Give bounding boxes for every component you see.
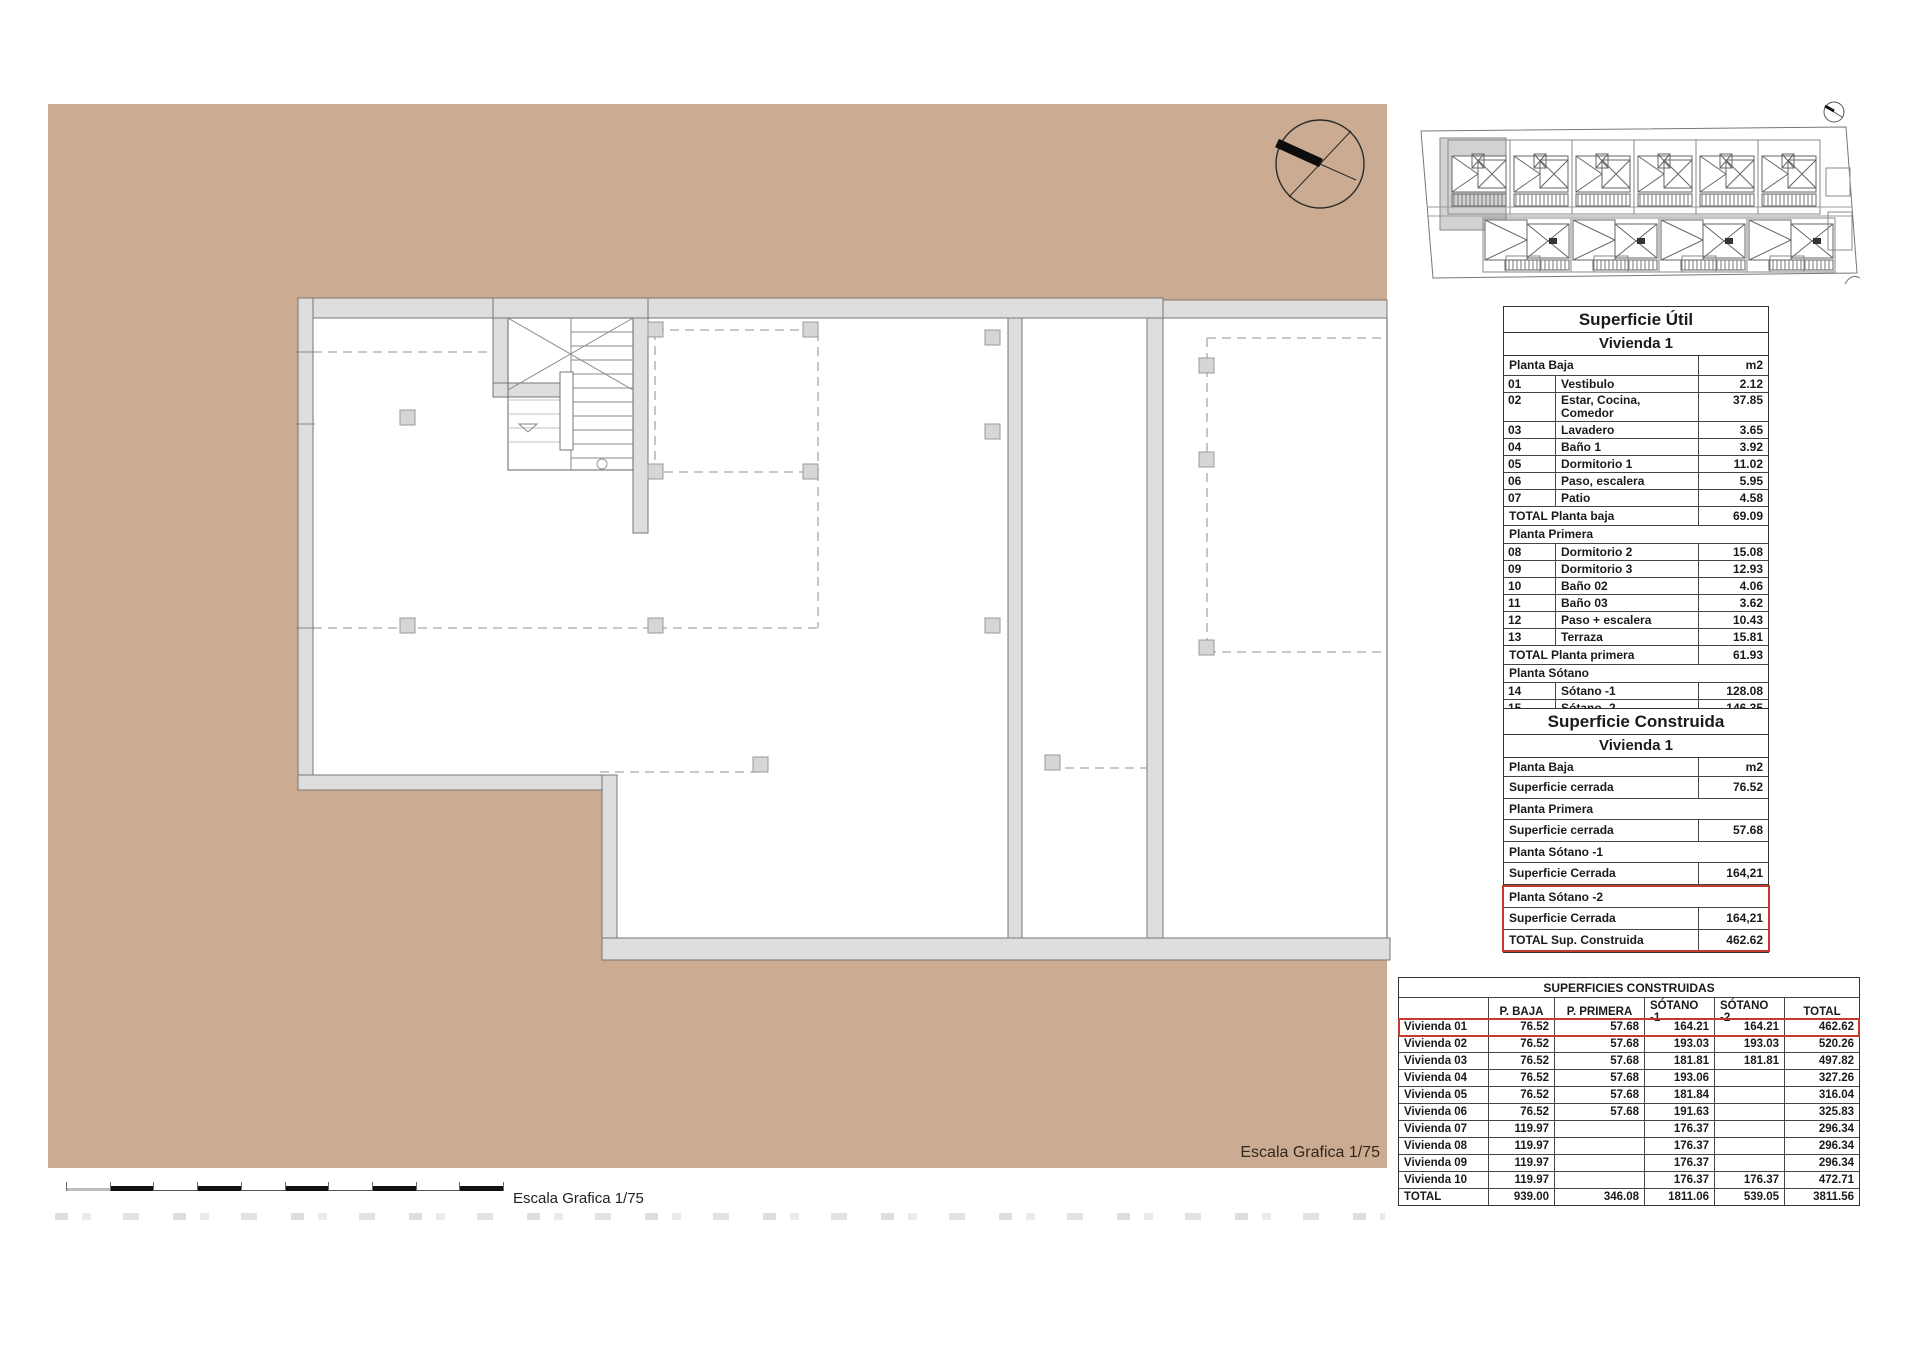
- row-value: 57.68: [1555, 1019, 1645, 1035]
- table-row: Superficie cerrada57.68: [1504, 820, 1768, 842]
- row-value: 193.06: [1645, 1070, 1715, 1086]
- row-value: [1555, 1172, 1645, 1188]
- row-number: 12: [1504, 612, 1556, 628]
- row-label: Vivienda 08: [1399, 1138, 1489, 1154]
- superficie-construida-table: Superficie Construida Vivienda 1 Planta …: [1503, 708, 1769, 953]
- scale-bar-segment: [110, 1186, 154, 1191]
- row-value: 176.37: [1645, 1121, 1715, 1137]
- row-label: Vestibulo: [1556, 377, 1698, 392]
- table-row: 04Baño 13.92: [1504, 439, 1768, 456]
- row-value: 327.26: [1785, 1070, 1859, 1086]
- table-title: Superficie Construida: [1504, 709, 1768, 735]
- table-row: 14Sótano -1128.08: [1504, 683, 1768, 700]
- row-value: 164.21: [1645, 1019, 1715, 1035]
- table-row: 12Paso + escalera10.43: [1504, 612, 1768, 629]
- row-value: 76.52: [1489, 1070, 1555, 1086]
- summary-row: Vivienda 0476.5257.68193.06327.26: [1399, 1070, 1859, 1087]
- row-label: Baño 02: [1556, 579, 1698, 594]
- row-value: 325.83: [1785, 1104, 1859, 1120]
- row-label: Superficie cerrada: [1504, 823, 1698, 838]
- row-label: Vivienda 04: [1399, 1070, 1489, 1086]
- row-value: 181.81: [1645, 1053, 1715, 1069]
- table-subtitle: Vivienda 1: [1504, 333, 1768, 356]
- row-label: Planta Sótano -2: [1504, 890, 1768, 905]
- row-label: Paso, escalera: [1556, 474, 1698, 489]
- table-row: Planta Sótano: [1504, 665, 1768, 683]
- row-value: 176.37: [1645, 1172, 1715, 1188]
- summary-row: Vivienda 10119.97176.37176.37472.71: [1399, 1172, 1859, 1189]
- row-value: 119.97: [1489, 1155, 1555, 1171]
- table-row: 09Dormitorio 312.93: [1504, 561, 1768, 578]
- table-row: TOTAL Planta baja69.09: [1504, 507, 1768, 526]
- scale-bar-label: Escala Grafica 1/75: [513, 1190, 644, 1207]
- scale-bar-tick: [197, 1182, 198, 1191]
- row-label: Vivienda 05: [1399, 1087, 1489, 1103]
- row-number: 14: [1504, 683, 1556, 699]
- row-label: Baño 03: [1556, 596, 1698, 611]
- table-rows: Planta Bajam2Superficie cerrada76.52Plan…: [1504, 758, 1768, 952]
- row-value: 176.37: [1715, 1172, 1785, 1188]
- summary-row: TOTAL939.00346.081811.06539.053811.56: [1399, 1189, 1859, 1205]
- fine-print-line: [55, 1213, 1385, 1220]
- row-number: 08: [1504, 544, 1556, 560]
- row-label: Vivienda 01: [1399, 1019, 1489, 1035]
- row-value: [1555, 1155, 1645, 1171]
- row-value: 76.52: [1489, 1053, 1555, 1069]
- summary-row: Vivienda 07119.97176.37296.34: [1399, 1121, 1859, 1138]
- row-value: 128.08: [1698, 683, 1768, 699]
- row-value: 76.52: [1489, 1087, 1555, 1103]
- row-value: [1715, 1121, 1785, 1137]
- row-label: Dormitorio 3: [1556, 562, 1698, 577]
- row-value: 3.92: [1698, 439, 1768, 455]
- row-number: 02: [1504, 393, 1556, 421]
- row-label: Estar, Cocina, Comedor: [1556, 393, 1698, 420]
- row-label: Sótano -1: [1556, 684, 1698, 699]
- row-label: Vivienda 09: [1399, 1155, 1489, 1171]
- row-number: 05: [1504, 456, 1556, 472]
- table-row: Planta Bajam2: [1504, 758, 1768, 777]
- summary-table-header: P. BAJAP. PRIMERASÓTANO -1SÓTANO -2TOTAL: [1399, 998, 1859, 1019]
- scale-bar-tick: [328, 1182, 329, 1191]
- row-value: 119.97: [1489, 1172, 1555, 1188]
- summary-table-title: SUPERFICIES CONSTRUIDAS: [1399, 978, 1859, 998]
- row-label: Planta Primera: [1504, 527, 1768, 542]
- row-number: 07: [1504, 490, 1556, 506]
- scale-bar-tick: [66, 1182, 67, 1191]
- plan-sheet: Superficie Útil Vivienda 1 Planta Bajam2…: [0, 0, 1920, 1357]
- summary-row: Vivienda 09119.97176.37296.34: [1399, 1155, 1859, 1172]
- row-value: 4.06: [1698, 578, 1768, 594]
- row-value: 57.68: [1555, 1104, 1645, 1120]
- terrain-background: [48, 104, 1387, 1168]
- row-value: 181.84: [1645, 1087, 1715, 1103]
- table-row: Planta Sótano -2: [1504, 887, 1768, 908]
- summary-table-rows: Vivienda 0176.5257.68164.21164.21462.62V…: [1399, 1019, 1859, 1205]
- row-value: [1715, 1070, 1785, 1086]
- site-plan-thumbnail: [1421, 102, 1860, 284]
- row-value: 193.03: [1715, 1036, 1785, 1052]
- row-value: 1811.06: [1645, 1189, 1715, 1205]
- row-label: Planta Baja: [1504, 760, 1698, 775]
- row-value: 164,21: [1698, 908, 1768, 929]
- row-value: 57.68: [1555, 1087, 1645, 1103]
- row-value: 164.21: [1715, 1019, 1785, 1035]
- row-value: [1555, 1138, 1645, 1154]
- row-number: 13: [1504, 629, 1556, 645]
- table-row: 13Terraza15.81: [1504, 629, 1768, 646]
- row-value: 61.93: [1698, 646, 1768, 664]
- scale-bar-tick: [241, 1182, 242, 1191]
- row-value: 296.34: [1785, 1138, 1859, 1154]
- row-value: 76.52: [1489, 1019, 1555, 1035]
- row-label: Vivienda 07: [1399, 1121, 1489, 1137]
- scale-bar-tick: [110, 1182, 111, 1191]
- scale-bar-tick: [459, 1182, 460, 1191]
- row-label: TOTAL Sup. Construida: [1504, 933, 1698, 948]
- row-label: Patio: [1556, 491, 1698, 506]
- row-label: Vivienda 02: [1399, 1036, 1489, 1052]
- row-label: Planta Sótano: [1504, 666, 1768, 681]
- row-value: 176.37: [1645, 1155, 1715, 1171]
- highlighted-row-group: Planta Sótano -2Superficie Cerrada164,21…: [1502, 885, 1770, 952]
- row-label: TOTAL: [1399, 1189, 1489, 1205]
- row-value: 57.68: [1555, 1036, 1645, 1052]
- row-value: 37.85: [1698, 393, 1768, 421]
- row-label: TOTAL Planta primera: [1504, 648, 1698, 663]
- superficie-util-table: Superficie Útil Vivienda 1 Planta Bajam2…: [1503, 306, 1769, 737]
- row-value: 119.97: [1489, 1121, 1555, 1137]
- row-value: [1715, 1138, 1785, 1154]
- row-label: Lavadero: [1556, 423, 1698, 438]
- table-row: Planta Bajam2: [1504, 356, 1768, 376]
- table-row: 11Baño 033.62: [1504, 595, 1768, 612]
- row-value: 462.62: [1698, 930, 1768, 950]
- row-label: Paso + escalera: [1556, 613, 1698, 628]
- table-subtitle-text: Vivienda 1: [1599, 738, 1673, 754]
- row-number: 03: [1504, 422, 1556, 438]
- row-number: 11: [1504, 595, 1556, 611]
- row-value: 497.82: [1785, 1053, 1859, 1069]
- row-number: 04: [1504, 439, 1556, 455]
- row-value: 3811.56: [1785, 1189, 1859, 1205]
- summary-row: Vivienda 0176.5257.68164.21164.21462.62: [1399, 1019, 1859, 1036]
- row-value: 462.62: [1785, 1019, 1859, 1035]
- row-value: [1715, 1087, 1785, 1103]
- row-value: 11.02: [1698, 456, 1768, 472]
- row-value: 76.52: [1698, 777, 1768, 798]
- table-row: 07Patio4.58: [1504, 490, 1768, 507]
- scale-bar-segment: [459, 1186, 503, 1191]
- highlighted-plot: [1440, 138, 1506, 230]
- row-value: 3.65: [1698, 422, 1768, 438]
- row-value: 191.63: [1645, 1104, 1715, 1120]
- summary-row: Vivienda 0276.5257.68193.03193.03520.26: [1399, 1036, 1859, 1053]
- row-value: 69.09: [1698, 507, 1768, 525]
- row-value: 15.81: [1698, 629, 1768, 645]
- scale-bar-segment: [241, 1186, 285, 1191]
- row-label: Planta Primera: [1504, 802, 1768, 817]
- table-row: TOTAL Sup. Construida462.62: [1504, 930, 1768, 950]
- row-label: Superficie Cerrada: [1504, 911, 1698, 926]
- scale-bar-segment: [153, 1186, 197, 1191]
- row-value: 76.52: [1489, 1036, 1555, 1052]
- row-value: 939.00: [1489, 1189, 1555, 1205]
- summary-row: Vivienda 0676.5257.68191.63325.83: [1399, 1104, 1859, 1121]
- row-value: 57.68: [1555, 1053, 1645, 1069]
- row-value: 76.52: [1489, 1104, 1555, 1120]
- row-label: Planta Baja: [1504, 358, 1698, 373]
- table-row: 01Vestibulo2.12: [1504, 376, 1768, 393]
- graphic-scale-bar: [66, 1181, 503, 1193]
- row-number: 06: [1504, 473, 1556, 489]
- row-value: 119.97: [1489, 1138, 1555, 1154]
- row-value: m2: [1698, 356, 1768, 375]
- table-row: 10Baño 024.06: [1504, 578, 1768, 595]
- table-row: Superficie cerrada76.52: [1504, 777, 1768, 799]
- row-value: 12.93: [1698, 561, 1768, 577]
- table-row: 05Dormitorio 111.02: [1504, 456, 1768, 473]
- table-row: Planta Sótano -1: [1504, 842, 1768, 863]
- row-value: 15.08: [1698, 544, 1768, 560]
- summary-row: Vivienda 0576.5257.68181.84316.04: [1399, 1087, 1859, 1104]
- scale-bar-segment: [197, 1186, 241, 1191]
- table-row: Planta Primera: [1504, 526, 1768, 544]
- table-subtitle: Vivienda 1: [1504, 735, 1768, 758]
- table-row: 08Dormitorio 215.08: [1504, 544, 1768, 561]
- row-value: 296.34: [1785, 1121, 1859, 1137]
- table-row: 06Paso, escalera5.95: [1504, 473, 1768, 490]
- scale-bar-tick: [503, 1182, 504, 1191]
- table-row: Superficie Cerrada164,21: [1504, 863, 1768, 885]
- row-label: TOTAL Planta baja: [1504, 509, 1698, 524]
- row-value: 539.05: [1715, 1189, 1785, 1205]
- row-value: 57.68: [1698, 820, 1768, 841]
- scale-bar-tick: [153, 1182, 154, 1191]
- row-value: 472.71: [1785, 1172, 1859, 1188]
- row-value: 3.62: [1698, 595, 1768, 611]
- row-value: 164,21: [1698, 863, 1768, 884]
- scale-bar-segment: [285, 1186, 329, 1191]
- row-value: [1555, 1121, 1645, 1137]
- row-value: 57.68: [1555, 1070, 1645, 1086]
- row-value: 346.08: [1555, 1189, 1645, 1205]
- summary-row: Vivienda 08119.97176.37296.34: [1399, 1138, 1859, 1155]
- row-label: Baño 1: [1556, 440, 1698, 455]
- row-value: 4.58: [1698, 490, 1768, 506]
- table-row: Planta Primera: [1504, 799, 1768, 820]
- row-label: Superficie cerrada: [1504, 780, 1698, 795]
- row-value: 520.26: [1785, 1036, 1859, 1052]
- table-row: 02Estar, Cocina, Comedor37.85: [1504, 393, 1768, 422]
- scale-bar-tick: [416, 1182, 417, 1191]
- table-row: Superficie Cerrada164,21: [1504, 908, 1768, 930]
- row-value: 296.34: [1785, 1155, 1859, 1171]
- row-label: Vivienda 03: [1399, 1053, 1489, 1069]
- row-label: Planta Sótano -1: [1504, 845, 1768, 860]
- scale-bar-segment: [416, 1186, 460, 1191]
- row-label: Vivienda 10: [1399, 1172, 1489, 1188]
- summary-row: Vivienda 0376.5257.68181.81181.81497.82: [1399, 1053, 1859, 1070]
- row-value: 181.81: [1715, 1053, 1785, 1069]
- row-label: Dormitorio 2: [1556, 545, 1698, 560]
- row-number: 01: [1504, 376, 1556, 392]
- row-value: 176.37: [1645, 1138, 1715, 1154]
- row-value: 2.12: [1698, 376, 1768, 392]
- row-label: Dormitorio 1: [1556, 457, 1698, 472]
- row-value: [1715, 1104, 1785, 1120]
- row-value: [1715, 1155, 1785, 1171]
- site-plan-north-icon: [1824, 102, 1844, 122]
- plan-scale-label: Escala Grafica 1/75: [1205, 1144, 1380, 1162]
- row-label: Terraza: [1556, 630, 1698, 645]
- row-value: 193.03: [1645, 1036, 1715, 1052]
- scale-bar-tick: [285, 1182, 286, 1191]
- row-value: 5.95: [1698, 473, 1768, 489]
- table-title: Superficie Útil: [1504, 307, 1768, 333]
- table-row: TOTAL Planta primera61.93: [1504, 646, 1768, 665]
- scale-bar-segment: [328, 1186, 372, 1191]
- row-value: 10.43: [1698, 612, 1768, 628]
- row-label: Vivienda 06: [1399, 1104, 1489, 1120]
- row-number: 09: [1504, 561, 1556, 577]
- scale-bar-segment: [66, 1188, 110, 1191]
- row-value: 316.04: [1785, 1087, 1859, 1103]
- scale-bar-tick: [372, 1182, 373, 1191]
- table-row: 03Lavadero3.65: [1504, 422, 1768, 439]
- superficies-construidas-table: SUPERFICIES CONSTRUIDAS P. BAJAP. PRIMER…: [1398, 977, 1860, 1206]
- table-rows: Planta Bajam201Vestibulo2.1202Estar, Coc…: [1504, 356, 1768, 736]
- row-label: Superficie Cerrada: [1504, 866, 1698, 881]
- row-value: m2: [1698, 758, 1768, 776]
- row-number: 10: [1504, 578, 1556, 594]
- table-title-text: Superficie Construida: [1548, 713, 1725, 731]
- table-subtitle-text: Vivienda 1: [1599, 336, 1673, 352]
- table-title-text: Superficie Útil: [1579, 311, 1693, 329]
- scale-bar-segment: [372, 1186, 416, 1191]
